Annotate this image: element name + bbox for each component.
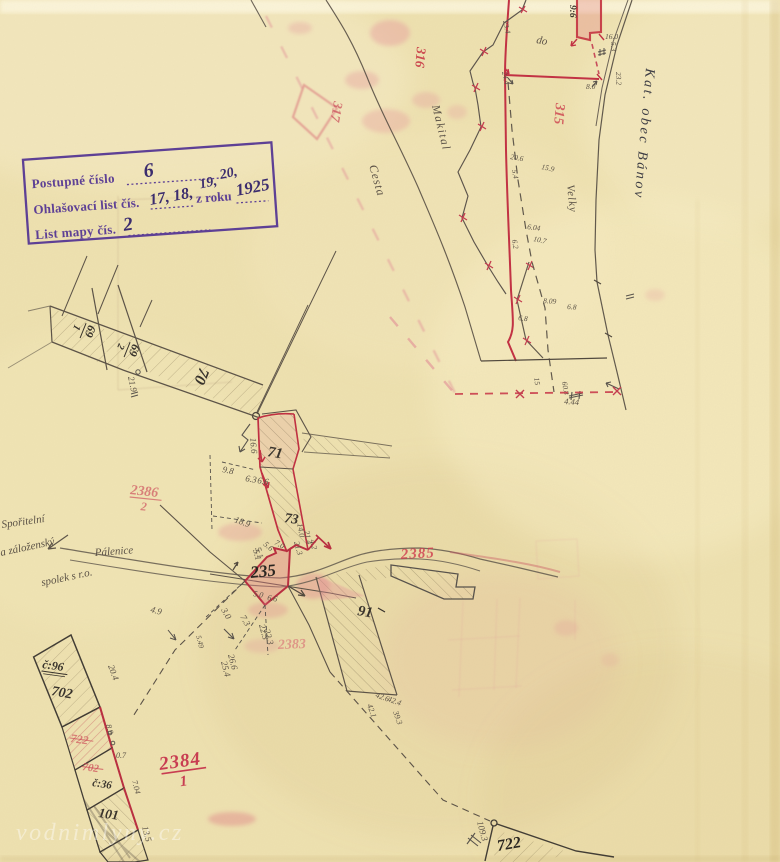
svg-text:vodnimlyny.cz: vodnimlyny.cz [16, 820, 184, 846]
